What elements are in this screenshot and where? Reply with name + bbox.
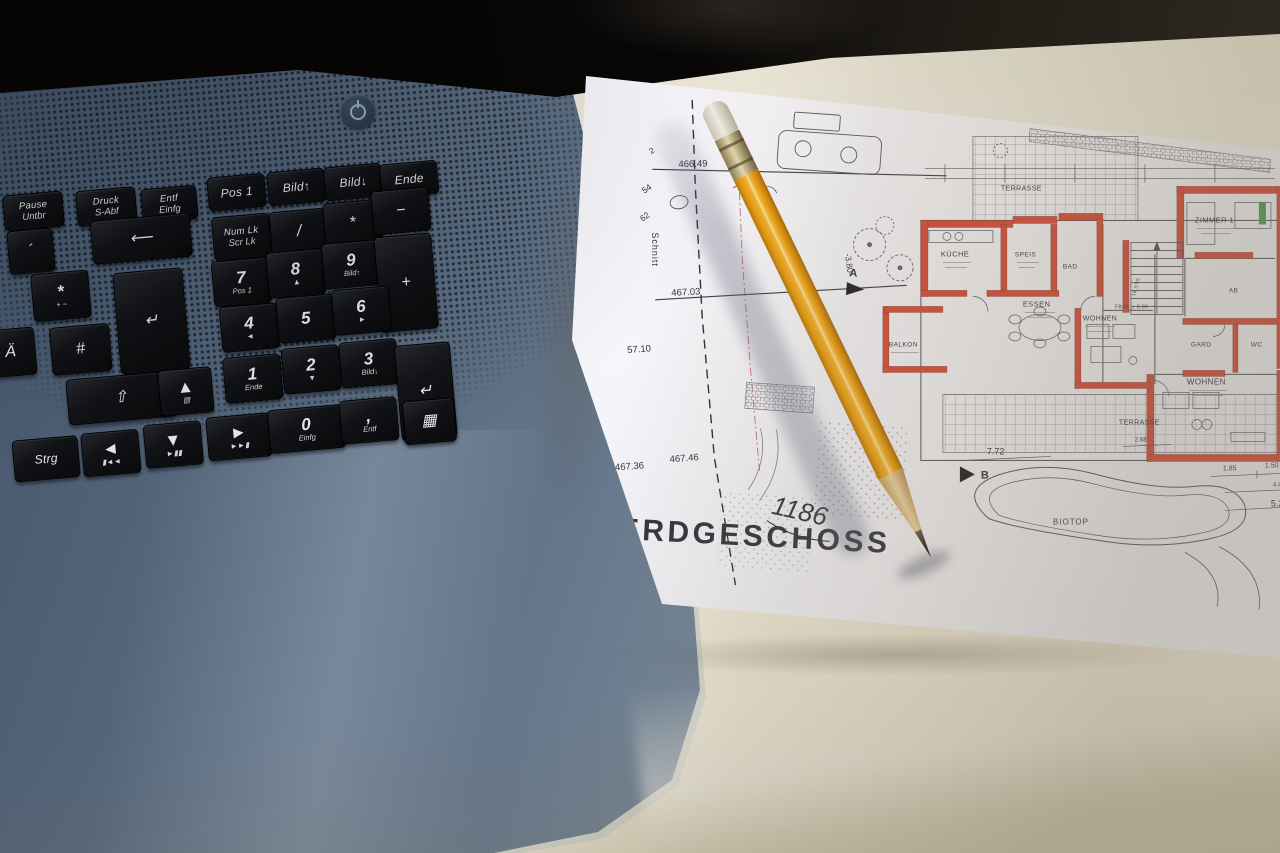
svg-text:467.36: 467.36 — [615, 460, 645, 473]
svg-text:TERRASSE: TERRASSE — [1001, 185, 1042, 192]
key-np-4: 4◄ — [219, 302, 281, 353]
svg-text:WOHNEN: WOHNEN — [1187, 377, 1226, 386]
biotop-pond — [968, 462, 1268, 610]
svg-text:SPEIS: SPEIS — [1015, 251, 1036, 258]
key-np-7: 7Pos 1 — [211, 257, 273, 308]
svg-text:1.85: 1.85 — [1223, 465, 1237, 472]
svg-text:467.46: 467.46 — [669, 452, 699, 465]
key-media-prev: ◄▮◄◄ — [80, 429, 142, 478]
svg-text:KÜCHE: KÜCHE — [941, 249, 969, 258]
section-b-label: B — [981, 469, 989, 481]
key-acute: ´ — [6, 227, 56, 275]
garden-path — [747, 428, 779, 502]
svg-text:2: 2 — [647, 146, 656, 156]
svg-text:4.44: 4.44 — [1273, 482, 1280, 488]
key-np-3: 3Bild↓ — [338, 338, 400, 389]
key-bild-up: Bild↑ — [266, 168, 327, 207]
key-np-6: 6► — [331, 285, 393, 336]
svg-text:FBOK ± 0.00: FBOK ± 0.00 — [1115, 304, 1148, 310]
key-np-2: 2▼ — [280, 344, 342, 395]
power-icon — [340, 94, 376, 130]
key-media-display: ▲▤ — [157, 366, 215, 417]
svg-text:7.72: 7.72 — [987, 446, 1005, 456]
key-np-0: 0Einfg — [267, 404, 347, 454]
key-media-play: ▼►▮▮ — [143, 420, 205, 469]
key-media-next: ►►►▮ — [205, 412, 273, 461]
key-ae: Ä — [0, 326, 38, 378]
svg-text:AB: AB — [1229, 287, 1238, 294]
key-pause: PauseUntbr — [2, 190, 65, 231]
svg-text:BAD: BAD — [1063, 263, 1078, 270]
key-calc: ▦ — [402, 397, 458, 445]
svg-text:16 STG: 16 STG — [1131, 277, 1142, 297]
svg-text:1.50: 1.50 — [1265, 462, 1279, 469]
svg-text:BIOTOP: BIOTOP — [1053, 517, 1089, 526]
key-np-8: 8▲ — [265, 248, 327, 299]
svg-text:GARD: GARD — [1191, 341, 1211, 348]
svg-text:5.20: 5.20 — [1271, 498, 1280, 508]
key-np-1: 1Ende — [222, 353, 284, 404]
svg-text:ESSEN: ESSEN — [1023, 299, 1050, 308]
svg-text:TERRASSE: TERRASSE — [1119, 419, 1160, 426]
svg-text:ZIMMER 1: ZIMMER 1 — [1195, 215, 1234, 224]
svg-text:2.68: 2.68 — [1135, 437, 1147, 443]
key-star-plus-tilde: *+ ~ — [30, 269, 92, 322]
svg-text:WOHNEN: WOHNEN — [1083, 315, 1117, 322]
svg-text:WC: WC — [1251, 341, 1263, 348]
dark-object-glint — [560, 0, 890, 60]
key-enter-main: ↵ — [112, 267, 191, 375]
green-marker — [1259, 202, 1266, 224]
key-pos1: Pos 1 — [206, 173, 267, 212]
key-backspace: ⟵ — [90, 212, 193, 265]
keyboard: PauseUntbrDruckS-AbfEntfEinfgPos 1Bild↑B… — [10, 162, 536, 524]
svg-text:467.03: 467.03 — [671, 286, 701, 299]
svg-text:A: A — [849, 267, 858, 280]
key-strg: Strg — [11, 435, 80, 483]
key-np-minus: − — [370, 187, 432, 236]
section-b-marker — [960, 466, 975, 482]
building-plan: KÜCHE SPEIS BAD ESSEN BALKON ZIMMER 1 AB… — [883, 136, 1280, 526]
photo-scene: PauseUntbrDruckS-AbfEntfEinfgPos 1Bild↑B… — [0, 0, 1280, 853]
svg-text:Schnitt: Schnitt — [650, 232, 660, 267]
svg-text:57.10: 57.10 — [627, 343, 651, 356]
svg-text:BALKON: BALKON — [889, 341, 918, 348]
key-numlk: Num LkScr Lk — [211, 212, 273, 261]
key-np-5: 5 — [275, 293, 337, 344]
svg-text:54: 54 — [640, 182, 654, 196]
svg-text:62: 62 — [638, 210, 652, 224]
key-np-comma: ,Entf — [338, 396, 400, 445]
key-hash: # — [49, 323, 113, 376]
